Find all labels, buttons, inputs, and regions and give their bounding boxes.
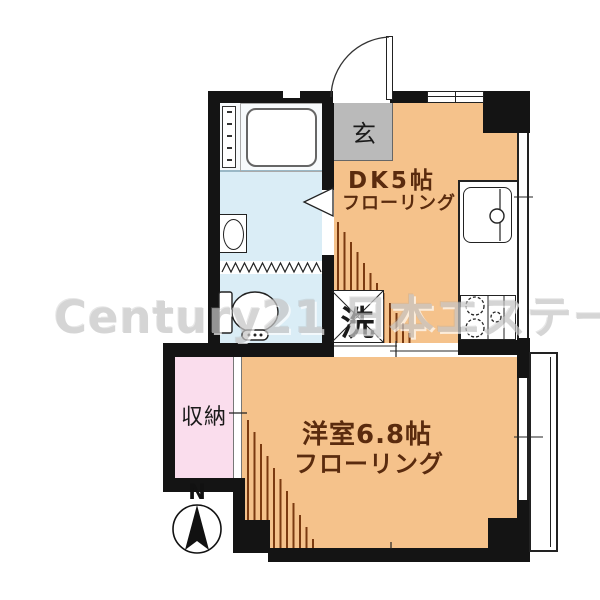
kitchen-sink <box>463 187 512 243</box>
western-flooring-label: フローリング <box>294 444 444 479</box>
window-top <box>427 91 484 103</box>
balcony <box>529 352 558 552</box>
entrance-door-leaf <box>386 36 393 100</box>
window-top-divider <box>455 92 456 102</box>
zigzag-strip <box>220 261 322 274</box>
wall-segment <box>483 91 530 133</box>
water-heater <box>222 106 236 168</box>
washroom-door-opening <box>322 190 334 255</box>
compass-needle <box>185 505 209 550</box>
dk-flooring-label: フローリング <box>342 189 456 215</box>
balcony-railing <box>550 357 551 547</box>
bathtub <box>246 108 317 167</box>
watermark: Century21 日本エステート <box>54 281 600 346</box>
window-right-lower <box>517 378 529 500</box>
wall-segment <box>233 490 245 553</box>
compass-ring <box>173 505 221 553</box>
entrance-door-arc <box>331 37 389 97</box>
entrance-opening <box>333 91 390 103</box>
closet-door <box>233 357 242 478</box>
wall-segment <box>245 520 270 553</box>
bath-wall-notch <box>283 91 300 98</box>
wall-segment <box>163 343 175 492</box>
washbasin-bowl <box>223 219 244 250</box>
washbasin <box>219 214 247 253</box>
closet-label: 収納 <box>175 399 233 431</box>
genkan-label: 玄 <box>352 114 376 149</box>
floor-plan: N 玄 DK5帖 フローリング 洗 収納 洋室6.8帖 フローリング Centu… <box>0 0 600 600</box>
water-heater-marks <box>227 111 232 163</box>
